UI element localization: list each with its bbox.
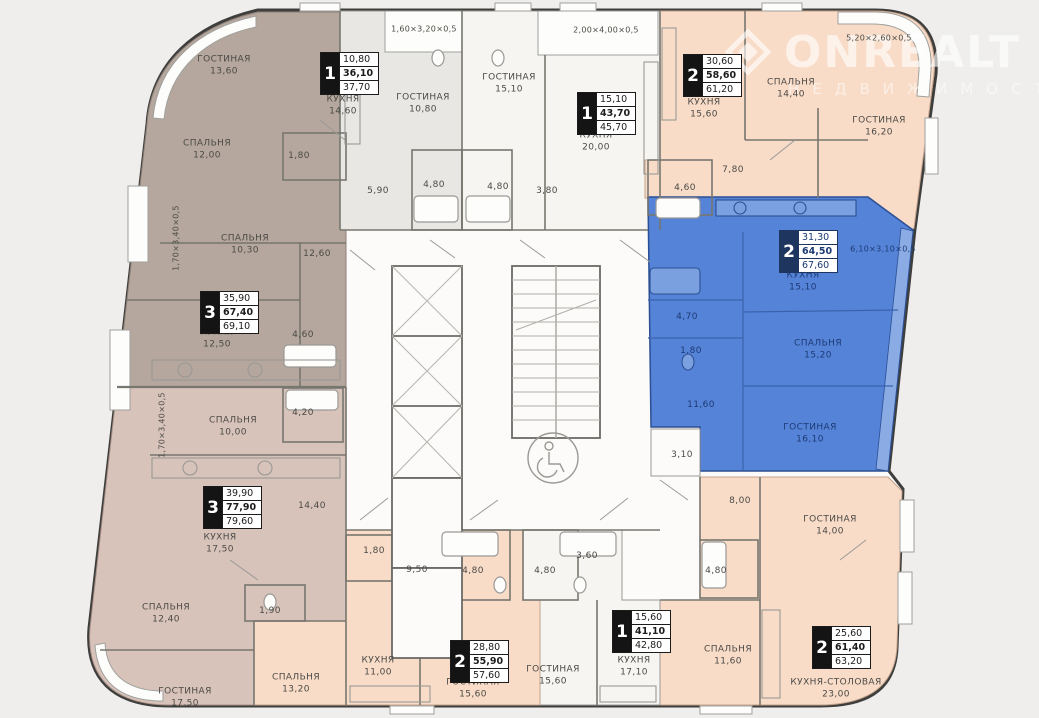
apartment-info-box[interactable]: 230,6058,6061,20 — [683, 54, 742, 97]
apartment-info-box[interactable]: 115,6041,1042,80 — [612, 610, 671, 653]
apartment-area-value: 79,60 — [222, 515, 261, 528]
apartment-info-box[interactable]: 115,1043,7045,70 — [577, 92, 636, 135]
apartment-area-value: 64,50 — [798, 245, 837, 259]
apartment-area-value: 15,10 — [596, 93, 635, 107]
apartment-rooms-count: 3 — [201, 292, 219, 333]
apartment-rooms-count: 2 — [451, 641, 469, 682]
apartment-area-value: 58,60 — [702, 69, 741, 83]
apartment-info-box[interactable]: 225,6061,4063,20 — [812, 626, 871, 669]
apartment-area-value: 42,80 — [631, 639, 670, 652]
apartment-area-value: 45,70 — [596, 121, 635, 134]
apartment-area-value: 39,90 — [222, 487, 261, 501]
apartment-area-value: 67,60 — [798, 259, 837, 272]
apartment-area-value: 28,80 — [469, 641, 508, 655]
apartment-info-box[interactable]: 110,8036,1037,70 — [320, 52, 379, 95]
apartment-rooms-count: 1 — [613, 611, 631, 652]
apartment-area-value: 37,70 — [339, 81, 378, 94]
floorplan-svg — [0, 0, 1039, 718]
apartment-rooms-count: 2 — [813, 627, 831, 668]
apartment-area-value: 43,70 — [596, 107, 635, 121]
apartment-area-value: 69,10 — [219, 320, 258, 333]
apartment-area-value: 61,40 — [831, 641, 870, 655]
apartment-area-value: 30,60 — [702, 55, 741, 69]
floorplan-page: ONREALT НЕДВИЖИМОСТЬ ГОСТИНАЯ13,60СПАЛЬН… — [0, 0, 1039, 718]
apartment-area-value: 25,60 — [831, 627, 870, 641]
apartment-rooms-count: 1 — [578, 93, 596, 134]
apartment-area-value: 57,60 — [469, 669, 508, 682]
apartment-area-value: 61,20 — [702, 83, 741, 96]
apartment-area-value: 67,40 — [219, 306, 258, 320]
apartment-info-box[interactable]: 228,8055,9057,60 — [450, 640, 509, 683]
apartment-area-value: 41,10 — [631, 625, 670, 639]
apartment-area-value: 35,90 — [219, 292, 258, 306]
apartment-rooms-count: 2 — [684, 55, 702, 96]
apartment-rooms-count: 3 — [204, 487, 222, 528]
blue-loggia — [651, 429, 700, 476]
apartment-area-value: 31,30 — [798, 231, 837, 245]
apartment-area-value: 10,80 — [339, 53, 378, 67]
apartment-info-box[interactable]: 231,3064,5067,60 — [779, 230, 838, 273]
apartment-area-value: 36,10 — [339, 67, 378, 81]
apartment-area-value: 63,20 — [831, 655, 870, 668]
apartment-area-value: 55,90 — [469, 655, 508, 669]
apartment-rooms-count: 1 — [321, 53, 339, 94]
apartment-info-box[interactable]: 339,9077,9079,60 — [203, 486, 262, 529]
apartment-area-value: 15,60 — [631, 611, 670, 625]
apartment-rooms-count: 2 — [780, 231, 798, 272]
apartment-info-box[interactable]: 335,9067,4069,10 — [200, 291, 259, 334]
apartment-area-value: 77,90 — [222, 501, 261, 515]
